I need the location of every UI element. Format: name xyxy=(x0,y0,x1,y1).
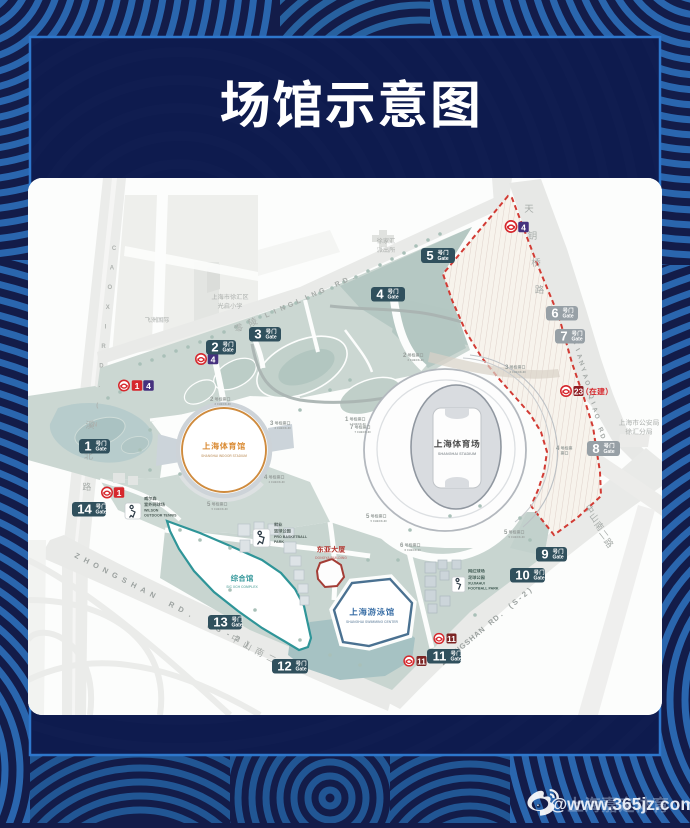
svg-text:@www.365jz.com: @www.365jz.com xyxy=(550,794,690,814)
svg-text:1: 1 xyxy=(84,439,91,454)
svg-text:Gate: Gate xyxy=(266,334,277,340)
svg-text:8: 8 xyxy=(592,441,599,456)
svg-text:6: 6 xyxy=(551,306,558,321)
svg-text:PARK: PARK xyxy=(274,540,284,544)
svg-text:Gate: Gate xyxy=(96,446,107,452)
svg-text:SHANGHAI SWIMMING CENTER: SHANGHAI SWIMMING CENTER xyxy=(346,620,399,624)
svg-text:SHANGHAI INDOOR STADIUM: SHANGHAI INDOOR STADIUM xyxy=(201,454,247,458)
svg-text:Gate: Gate xyxy=(572,336,583,342)
svg-text:Gate: Gate xyxy=(563,313,574,319)
svg-text:Gate: Gate xyxy=(388,294,399,300)
svg-text:6 CHECK-IN: 6 CHECK-IN xyxy=(405,548,421,552)
svg-text:C: C xyxy=(112,246,117,252)
svg-text:7 CHECK-IN: 7 CHECK-IN xyxy=(355,430,371,434)
svg-text:R: R xyxy=(101,344,106,350)
svg-text:DONGYA BUILDING: DONGYA BUILDING xyxy=(315,556,347,560)
svg-text:4: 4 xyxy=(521,222,526,232)
svg-text:13: 13 xyxy=(213,615,227,630)
svg-text:SHANGHAI STADIUM: SHANGHAI STADIUM xyxy=(438,452,476,456)
svg-text:WILSON: WILSON xyxy=(144,509,159,513)
svg-text:5 CHECK-IN: 5 CHECK-IN xyxy=(509,535,525,539)
svg-text:1: 1 xyxy=(135,381,140,391)
svg-text:Gate: Gate xyxy=(553,554,564,560)
svg-text:5: 5 xyxy=(426,248,433,263)
svg-text:5 CHECK-IN: 5 CHECK-IN xyxy=(371,519,387,523)
svg-text:7: 7 xyxy=(560,329,567,344)
svg-text:2 CHECK-IN: 2 CHECK-IN xyxy=(215,402,231,406)
svg-text:4 CHECK-IN: 4 CHECK-IN xyxy=(269,480,285,484)
svg-text:Gate: Gate xyxy=(296,666,307,672)
svg-text:1: 1 xyxy=(117,488,122,498)
svg-text:3 CHECK-IN: 3 CHECK-IN xyxy=(275,426,291,430)
svg-text:23: 23 xyxy=(574,387,584,396)
svg-text:(: ( xyxy=(96,403,98,409)
svg-text:Gate: Gate xyxy=(96,509,107,515)
svg-text:Gate: Gate xyxy=(232,622,243,628)
svg-text:O: O xyxy=(107,285,112,291)
svg-text:14: 14 xyxy=(77,502,92,517)
svg-text:11: 11 xyxy=(447,635,456,644)
svg-text:4: 4 xyxy=(211,354,216,364)
svg-text:SIC XCH COMPLEX: SIC XCH COMPLEX xyxy=(226,585,258,589)
svg-text:Gate: Gate xyxy=(534,575,545,581)
svg-text:2 CHECK-IN: 2 CHECK-IN xyxy=(408,358,424,362)
svg-text:Gate: Gate xyxy=(223,347,234,353)
svg-text:4: 4 xyxy=(146,381,151,391)
svg-text:5 CHECK-IN: 5 CHECK-IN xyxy=(212,507,228,511)
svg-text:4: 4 xyxy=(376,287,384,302)
svg-text:D: D xyxy=(99,364,104,370)
svg-text:3: 3 xyxy=(254,327,261,342)
svg-text:2: 2 xyxy=(211,340,218,355)
svg-text:PRO BASKETBALL: PRO BASKETBALL xyxy=(274,535,308,539)
svg-text:3 CHECK-IN: 3 CHECK-IN xyxy=(510,370,526,374)
svg-text:11: 11 xyxy=(417,657,426,666)
svg-text:Gate: Gate xyxy=(451,656,462,662)
svg-text:XUJIAHUI: XUJIAHUI xyxy=(468,582,485,586)
svg-text:A: A xyxy=(110,266,115,272)
svg-text:11: 11 xyxy=(433,649,447,664)
svg-text:10: 10 xyxy=(515,568,529,583)
svg-text:OUTDOOR TENNIS: OUTDOOR TENNIS xyxy=(144,514,177,518)
svg-text:FOOTBALL PARK: FOOTBALL PARK xyxy=(468,587,499,591)
svg-text:Gate: Gate xyxy=(604,449,615,455)
svg-text:12: 12 xyxy=(277,659,291,674)
svg-text:X: X xyxy=(106,305,110,311)
svg-text:9: 9 xyxy=(541,547,548,562)
svg-text:Gate: Gate xyxy=(438,256,449,262)
